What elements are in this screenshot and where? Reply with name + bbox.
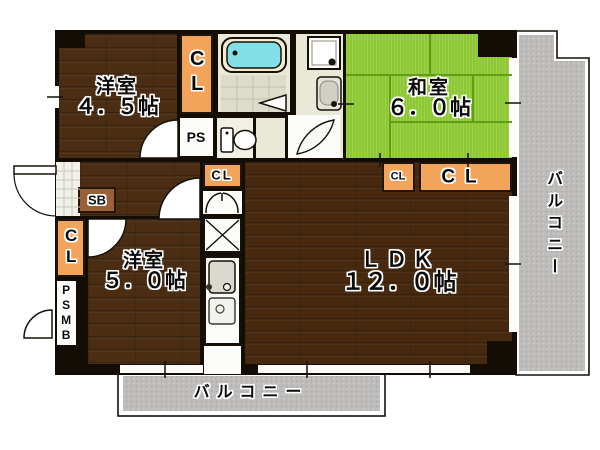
room-size: ５．０帖 — [102, 271, 186, 292]
room-name: 和室 — [387, 79, 471, 98]
label-shoe-box: SB — [88, 193, 106, 206]
label-closet-tatami-wide: CL — [441, 167, 486, 186]
label-balcony-right: バルコニー — [544, 170, 560, 280]
room-size: ４．５帖 — [75, 97, 159, 118]
washing-machine-icon — [308, 37, 340, 69]
door-arc-entrance — [14, 166, 56, 216]
label-closet-tatami-small: CL — [391, 171, 406, 182]
bathroom-tiles — [221, 75, 286, 112]
label-western-bottom: 洋室 ５．０帖 — [102, 252, 186, 293]
toilet-icon — [221, 128, 256, 152]
room-size: ６．０帖 — [387, 98, 471, 119]
room-size: １２．０帖 — [342, 271, 457, 294]
sink-icon — [317, 77, 341, 110]
room-name: 洋室 — [75, 78, 159, 97]
floor-plan: 洋室 ４．５帖 和室 ６．０帖 洋室 ５．０帖 ＬＤＫ １２．０帖 CL PS … — [0, 0, 600, 450]
label-psmb: PSMB — [60, 283, 72, 343]
bathtub-icon — [222, 38, 286, 72]
x-mark — [206, 220, 239, 250]
folding-door-icon — [206, 193, 238, 213]
label-balcony-bottom: バルコニー — [194, 385, 309, 401]
door-arc-ldk — [159, 178, 200, 219]
door-arc-meter-box — [24, 310, 52, 338]
fixture-layer — [0, 0, 600, 450]
label-closet-top: CL — [187, 48, 207, 98]
label-japanese: 和室 ６．０帖 — [387, 79, 471, 120]
label-ldk: ＬＤＫ １２．０帖 — [342, 250, 457, 295]
genkan-tiles — [56, 162, 80, 216]
room-name: 洋室 — [102, 252, 186, 271]
label-western-top: 洋室 ４．５帖 — [75, 78, 159, 119]
label-pipe-space: PS — [187, 130, 206, 144]
door-leaf-washroom — [297, 120, 334, 154]
label-closet-left: CL — [62, 226, 79, 268]
kitchen-sink-icon — [206, 261, 235, 293]
stove-icon — [209, 298, 235, 324]
door-arc-western-top — [140, 120, 178, 158]
label-closet-hall: CL — [211, 168, 232, 181]
